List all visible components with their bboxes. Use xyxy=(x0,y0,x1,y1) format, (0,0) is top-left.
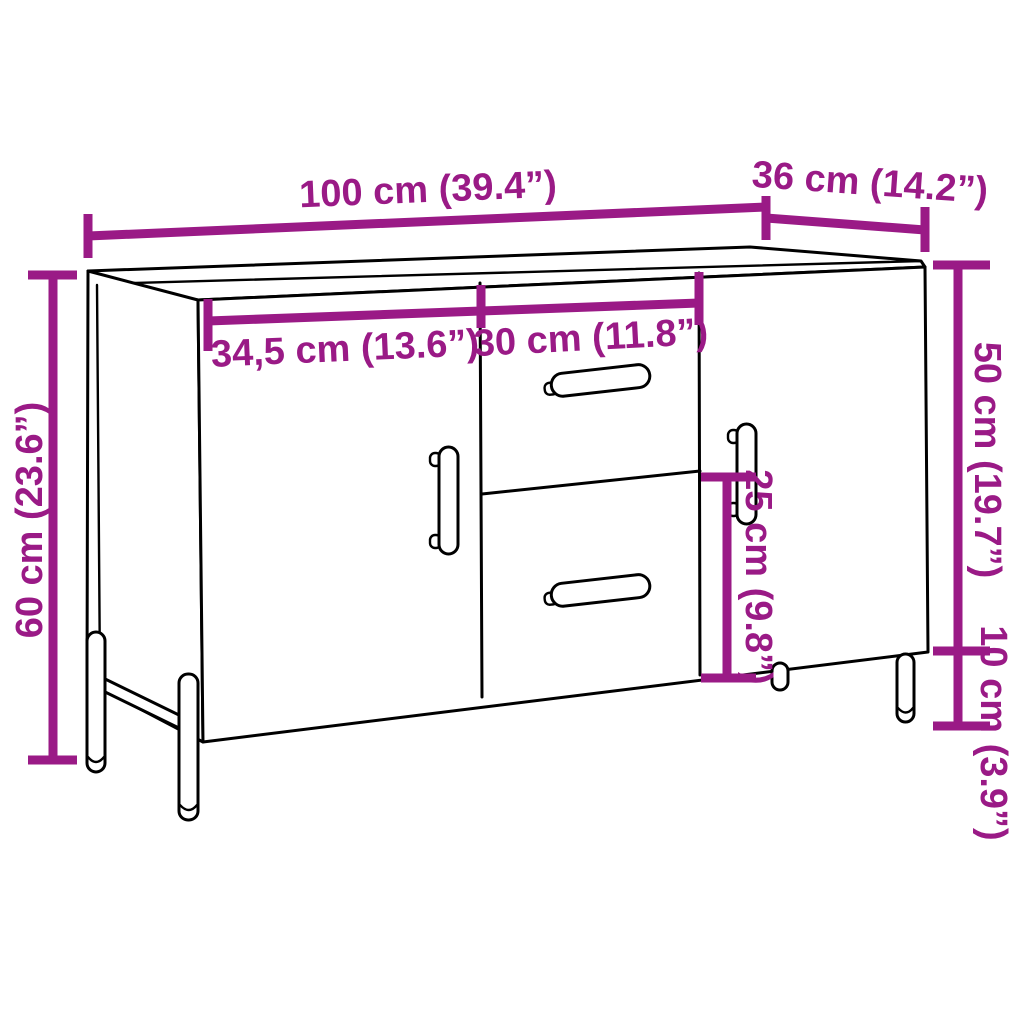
dimension-body-height: 50 cm (19.7”) xyxy=(933,265,1008,651)
dimension-leg-height: 10 cm (3.9”) xyxy=(933,625,1014,840)
dimension-overall-height: 60 cm (23.6”) xyxy=(9,275,77,760)
lower-drawer-height-label: 25 cm (9.8”) xyxy=(737,469,779,684)
overall-height-label: 60 cm (23.6”) xyxy=(9,402,51,639)
front-left-leg xyxy=(179,674,198,820)
depth-label: 36 cm (14.2”) xyxy=(751,154,990,212)
sideboard-diagram-canvas: 100 cm (39.4”) 36 cm (14.2”) 34,5 cm (13… xyxy=(0,0,1024,1024)
body-height-label: 50 cm (19.7”) xyxy=(966,342,1008,579)
dimension-overall-width: 100 cm (39.4”) xyxy=(88,164,766,258)
left-door-handle-bar xyxy=(439,447,458,554)
overall-width-label: 100 cm (39.4”) xyxy=(298,164,557,217)
back-left-leg xyxy=(87,632,105,772)
dimension-diagram: 100 cm (39.4”) 36 cm (14.2”) 34,5 cm (13… xyxy=(0,0,1024,1024)
leg-height-label: 10 cm (3.9”) xyxy=(972,625,1014,840)
dimension-depth: 36 cm (14.2”) xyxy=(751,154,990,252)
depth-line xyxy=(766,218,925,230)
overall-width-line xyxy=(88,207,766,236)
